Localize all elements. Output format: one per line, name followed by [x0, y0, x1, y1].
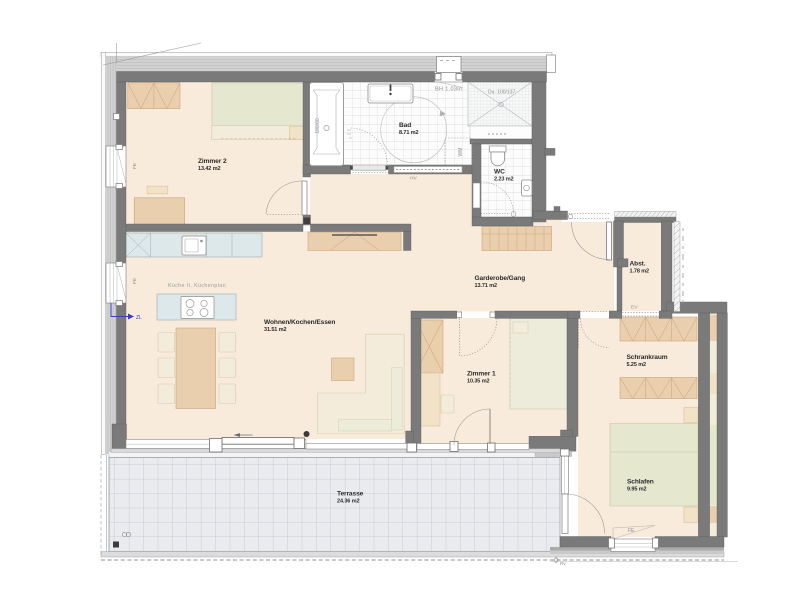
svg-text:8.71 m2: 8.71 m2	[399, 130, 419, 136]
svg-text:Schlafen: Schlafen	[627, 479, 654, 486]
svg-text:Wohnen/Kochen/Essen: Wohnen/Kochen/Essen	[264, 319, 335, 326]
svg-text:FE: FE	[132, 163, 138, 169]
svg-text:2.23 m2: 2.23 m2	[494, 177, 514, 183]
svg-text:EV: EV	[631, 305, 638, 311]
svg-text:Bad: Bad	[399, 122, 411, 129]
svg-text:Terrasse: Terrasse	[337, 491, 364, 498]
svg-text:FE: FE	[132, 278, 138, 284]
svg-text:1.78 m2: 1.78 m2	[630, 269, 650, 275]
svg-text:10.35 m2: 10.35 m2	[467, 379, 489, 385]
svg-text:HV: HV	[410, 176, 417, 182]
svg-text:180/80: 180/80	[315, 118, 321, 134]
svg-text:WC: WC	[494, 169, 505, 176]
svg-text:Du. 100/137: Du. 100/137	[488, 90, 515, 96]
svg-text:Garderobe/Gang: Garderobe/Gang	[475, 275, 526, 282]
svg-text:Zimmer 1: Zimmer 1	[467, 371, 496, 378]
svg-text:WM: WM	[458, 148, 464, 157]
svg-text:31.51 m2: 31.51 m2	[264, 327, 286, 333]
svg-text:Küche lt. Küchenplan: Küche lt. Küchenplan	[168, 283, 226, 289]
svg-text:Zimmer 2: Zimmer 2	[198, 158, 227, 165]
svg-text:Abst.: Abst.	[630, 261, 646, 268]
svg-text:BH 1.03m: BH 1.03m	[435, 87, 462, 93]
svg-text:5.25 m2: 5.25 m2	[627, 362, 647, 368]
svg-text:13.71 m2: 13.71 m2	[475, 283, 497, 289]
svg-text:ZL: ZL	[136, 315, 142, 321]
svg-text:9.95 m2: 9.95 m2	[627, 487, 647, 493]
svg-text:Schrankraum: Schrankraum	[627, 354, 668, 361]
svg-text:Rv: Rv	[560, 561, 566, 566]
svg-text:13.42 m2: 13.42 m2	[198, 166, 220, 172]
svg-text:24.36 m2: 24.36 m2	[337, 499, 359, 505]
svg-text:FE: FE	[628, 528, 635, 534]
